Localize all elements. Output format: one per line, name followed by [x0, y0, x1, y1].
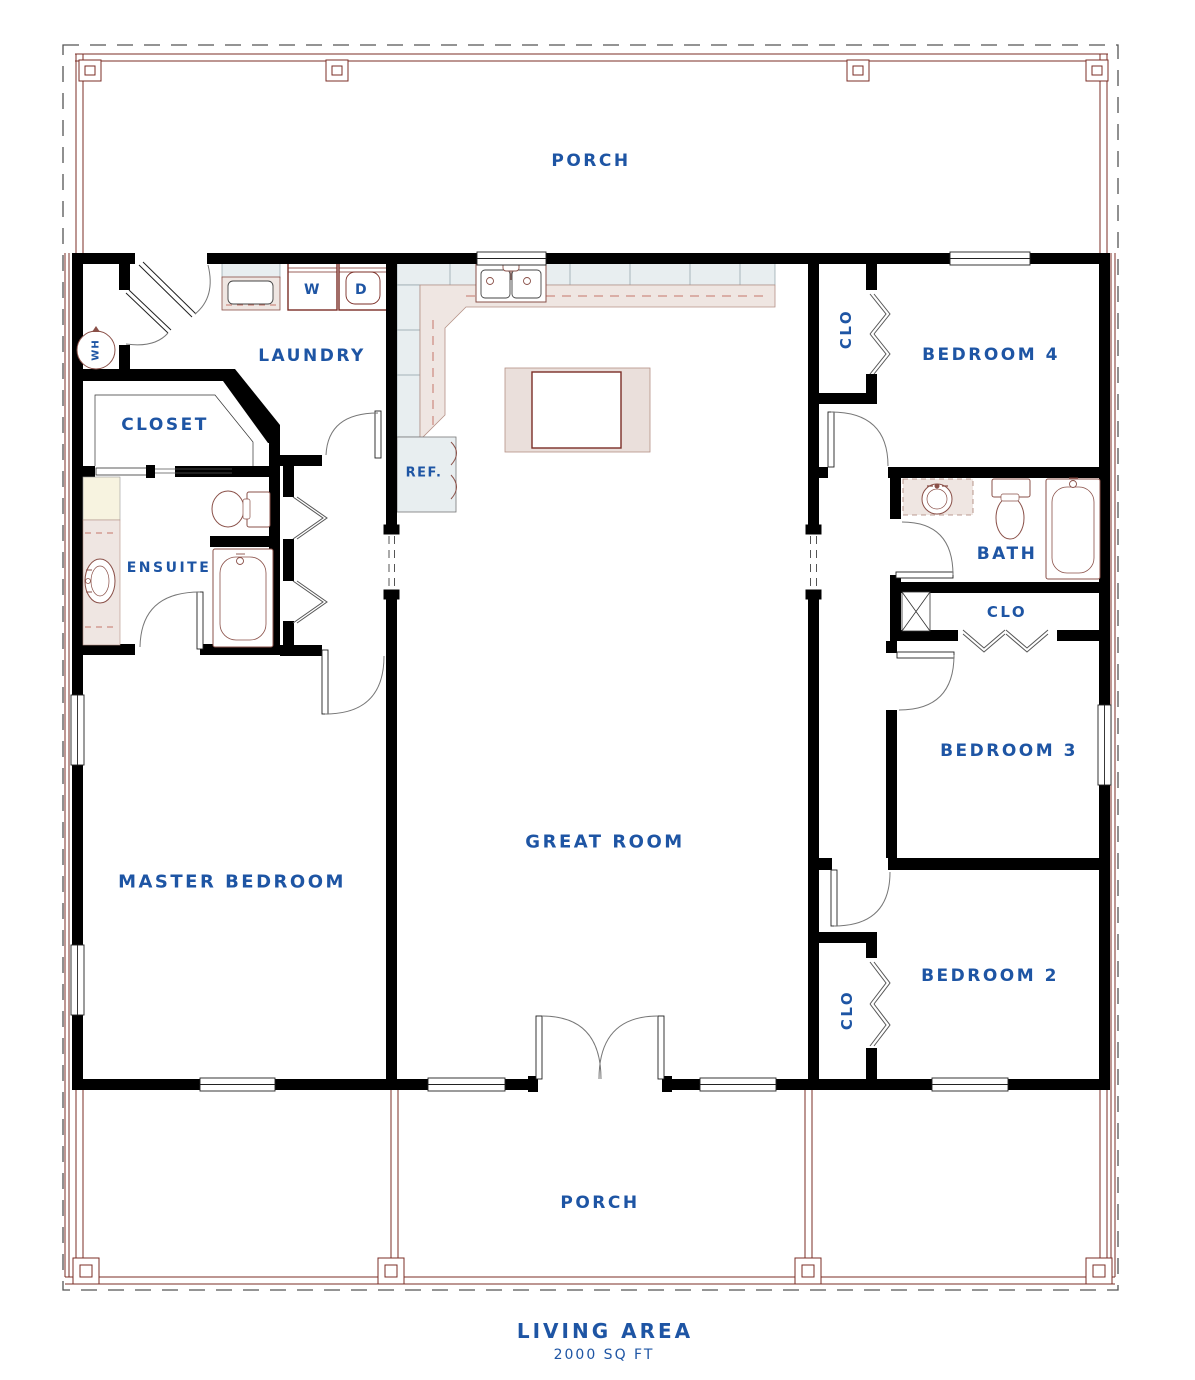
- bath-door: [896, 522, 953, 578]
- porch-structure: [65, 54, 1115, 1284]
- boundary-dashed-outline: [63, 45, 1118, 1290]
- ensuite-vanity: [83, 477, 120, 645]
- label-bedroom-4: BEDROOM 4: [922, 345, 1060, 365]
- window-master-1: [71, 695, 84, 765]
- laundry-hall-door: [326, 411, 381, 458]
- label-washer: W: [304, 282, 322, 298]
- bath-tub: [1046, 478, 1100, 579]
- label-bedroom-2: BEDROOM 2: [921, 966, 1059, 986]
- bedroom3-door: [897, 652, 954, 710]
- ensuite-tub: [213, 549, 273, 647]
- label-clo-bedroom4: CLO: [837, 309, 855, 349]
- label-dryer: D: [355, 282, 369, 298]
- living-area-sqft: 2000 SQ FT: [554, 1347, 655, 1363]
- window-kitchen: [477, 252, 546, 265]
- label-ensuite: ENSUITE: [127, 560, 212, 576]
- porch-posts-top: [79, 60, 1108, 81]
- label-bedroom-3: BEDROOM 3: [940, 741, 1078, 761]
- bedroom4-closet-bifold: [870, 294, 890, 374]
- bath-vanity: [903, 479, 973, 515]
- cased-openings: [384, 525, 821, 599]
- window-bedroom4: [950, 252, 1030, 265]
- living-area-title: LIVING AREA: [517, 1319, 693, 1343]
- water-heater-door: [126, 290, 171, 345]
- label-master-bedroom: MASTER BEDROOM: [118, 872, 346, 893]
- porch-posts-bottom: [73, 1258, 1112, 1284]
- label-closet: CLOSET: [121, 415, 209, 435]
- window-greatroom-2: [700, 1078, 776, 1091]
- bath-toilet: [992, 479, 1030, 539]
- entry-door: [139, 262, 210, 317]
- kitchen-sink: [476, 261, 546, 302]
- label-bath: BATH: [977, 544, 1038, 564]
- bedroom2-door: [831, 870, 890, 926]
- label-laundry: LAUNDRY: [258, 346, 366, 366]
- window-bedroom3: [1098, 705, 1111, 785]
- label-clo-bedroom2: CLO: [838, 990, 856, 1030]
- window-master-2: [71, 945, 84, 1015]
- ensuite-toilet: [212, 491, 270, 527]
- label-great-room: GREAT ROOM: [525, 832, 684, 853]
- master-door: [322, 650, 384, 714]
- ensuite-door: [140, 592, 203, 649]
- label-refrigerator: REF.: [406, 466, 443, 481]
- label-porch-top: PORCH: [551, 151, 630, 171]
- chase-xbox: [902, 592, 930, 631]
- floor-plan-drawing: [0, 0, 1195, 1380]
- kitchen-island: [505, 368, 650, 452]
- window-bedroom2: [932, 1078, 1008, 1091]
- bedroom4-door: [828, 412, 888, 467]
- bath-closet-bifold: [963, 630, 1048, 652]
- label-porch-bottom: PORCH: [560, 1193, 639, 1213]
- label-clo-bath: CLO: [987, 603, 1027, 621]
- linen-bifold: [293, 497, 327, 623]
- label-water-heater: WH: [91, 339, 102, 360]
- floor-plan: PORCH LAUNDRY CLOSET ENSUITE MASTER BEDR…: [0, 0, 1195, 1380]
- window-master-south: [200, 1078, 275, 1091]
- laundry-sink: [222, 261, 280, 310]
- bedroom2-closet-bifold: [870, 962, 890, 1046]
- window-greatroom-1: [428, 1078, 505, 1091]
